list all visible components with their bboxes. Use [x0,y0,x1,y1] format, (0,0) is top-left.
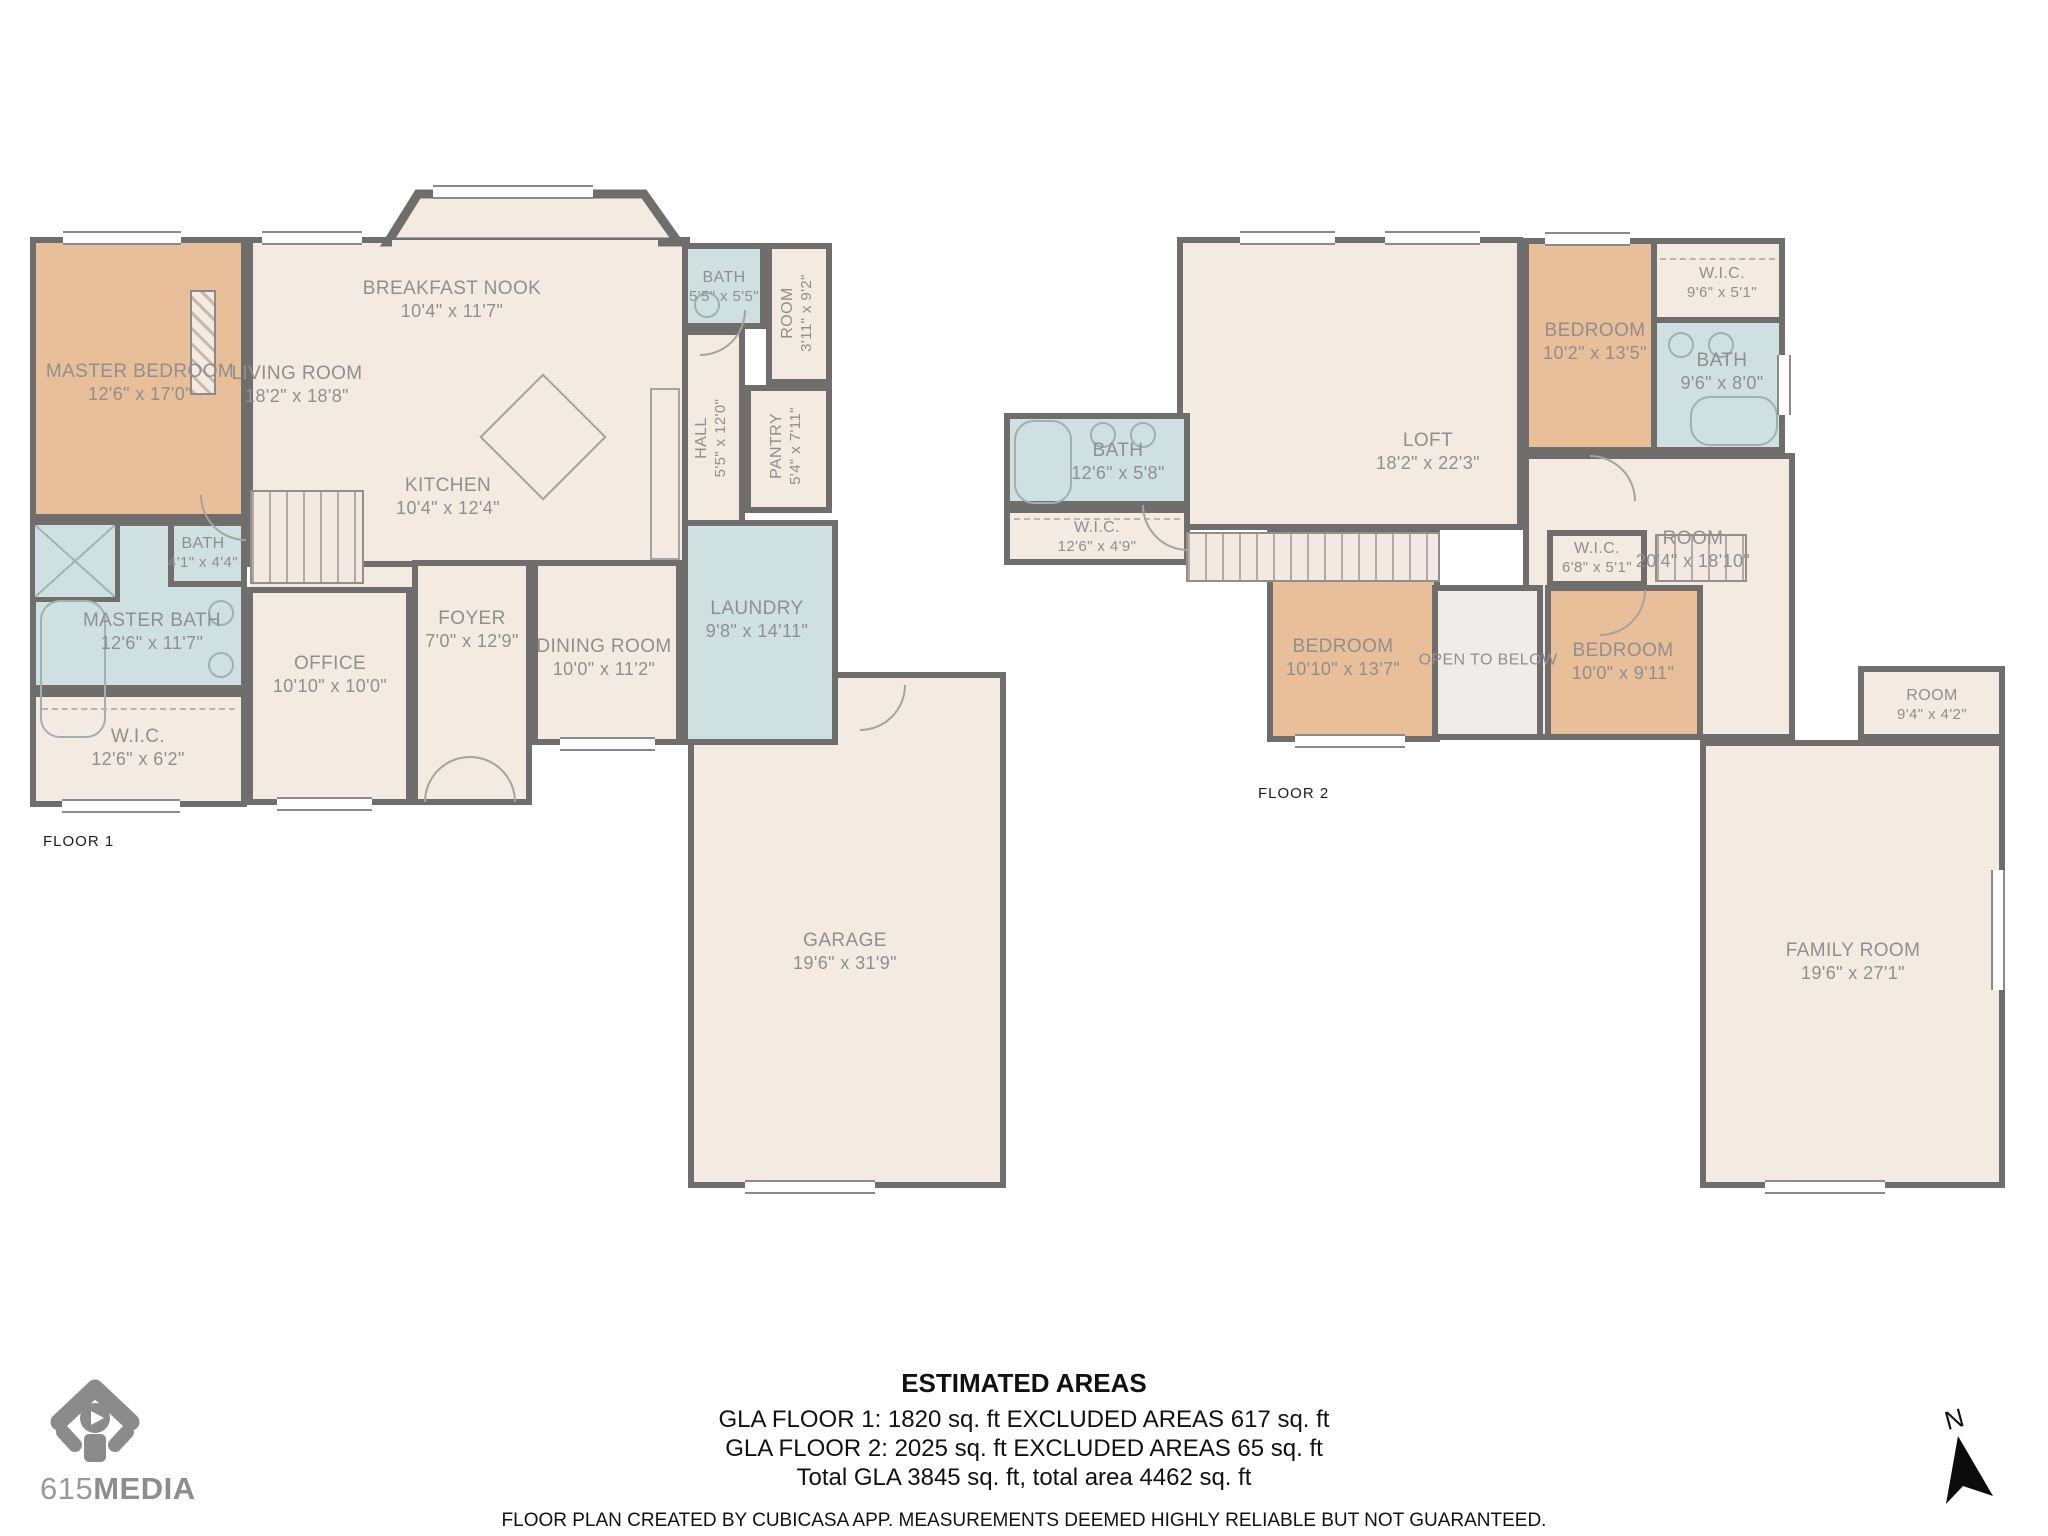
window [1385,231,1480,245]
label-office: OFFICE 10'10" x 10'0" [273,652,387,698]
closet-rod-line [1660,258,1775,260]
label-bath-upper: BATH 5'5" x 5'5" [689,268,759,306]
brand-logo: 615MEDIA [40,1372,196,1507]
label-big-room: ROOM 20'4" x 18'10" [1636,527,1750,573]
label-bedroom-mid: BEDROOM 10'0" x 9'11" [1572,639,1675,685]
window [1765,1180,1885,1194]
brand-word: MEDIA [93,1471,195,1506]
label-master-bedroom: MASTER BEDROOM 12'6" x 17'0" [46,360,234,406]
label-open-to-below: OPEN TO BELOW [1419,651,1558,670]
bathtub-icon [1014,420,1072,504]
total-gla-line: Total GLA 3845 sq. ft, total area 4462 s… [0,1463,2048,1492]
label-bath-small: BATH 4'1" x 4'4" [168,534,238,572]
label-wic-floor2-top: W.I.C. 9'6" x 5'1" [1687,264,1757,302]
window [1295,734,1405,748]
label-hall: HALL 5'5" x 12'0" [692,399,730,478]
window [277,797,372,811]
label-pantry: PANTRY 5'4" x 7'11" [767,407,805,485]
label-wic-floor2-small: W.I.C. 6'8" x 5'1" [1562,539,1632,577]
brand-house-icon [40,1372,150,1464]
bathtub-icon [1690,396,1778,446]
gla-floor2-line: GLA FLOOR 2: 2025 sq. ft EXCLUDED AREAS … [0,1434,2048,1463]
label-laundry: LAUNDRY 9'8" x 14'11" [706,597,809,643]
floor1-tag: FLOOR 1 [43,833,114,850]
label-family-room: FAMILY ROOM 19'6" x 27'1" [1786,939,1921,985]
estimated-areas-block: ESTIMATED AREAS GLA FLOOR 1: 1820 sq. ft… [0,1368,2048,1532]
label-garage: GARAGE 19'6" x 31'9" [793,929,897,975]
window [63,231,181,245]
room-loft [1177,237,1523,530]
floor2-tag: FLOOR 2 [1258,785,1329,802]
window [560,737,655,751]
label-wic-floor2-left: W.I.C. 12'6" x 4'9" [1058,518,1137,556]
label-kitchen: KITCHEN 10'4" x 12'4" [396,474,500,520]
window [1240,231,1335,245]
sink-icon [208,652,234,678]
disclaimer-text: FLOOR PLAN CREATED BY CUBICASA APP. MEAS… [0,1510,2048,1532]
label-living-room: LIVING ROOM 18'2" x 18'8" [231,362,362,408]
window [745,1180,875,1194]
label-foyer: FOYER 7'0" x 12'9" [425,607,519,653]
stairs-floor2-icon [1186,532,1440,582]
compass: N [1925,1402,2005,1517]
window [1777,355,1791,415]
brand-number: 615 [40,1471,93,1506]
label-side-room: ROOM 3'11" x 9'2" [778,274,816,352]
window [262,231,362,245]
label-wic-floor1: W.I.C. 12'6" x 6'2" [91,725,185,771]
label-bath-floor2-top: BATH 9'6" x 8'0" [1680,349,1763,395]
shower-stall [30,520,120,602]
bay-opening-patch [392,240,658,252]
window [1991,870,2005,990]
label-small-room: ROOM 9'4" x 4'2" [1897,686,1967,724]
label-bath-floor2-left: BATH 12'6" x 5'8" [1071,439,1165,485]
label-master-bath: MASTER BATH 12'6" x 11'7" [83,609,221,655]
stairs-floor1-icon [250,490,364,584]
label-breakfast-nook: BREAKFAST NOOK 10'4" x 11'7" [363,277,541,323]
label-loft: LOFT 18'2" x 22'3" [1376,429,1480,475]
window [433,185,593,199]
estimated-areas-heading: ESTIMATED AREAS [0,1368,2048,1399]
north-arrow-icon [1925,1402,2005,1517]
label-bedroom-low: BEDROOM 10'10" x 13'7" [1286,635,1400,681]
label-bedroom-top: BEDROOM 10'2" x 13'5" [1543,319,1647,365]
kitchen-counter-icon [650,388,680,560]
window [62,799,180,813]
window [1545,232,1630,246]
closet-rod-line [42,708,235,710]
brand-text: 615MEDIA [40,1471,196,1507]
floor-plan-page: MASTER BEDROOM 12'6" x 17'0" LIVING ROOM… [0,0,2048,1536]
gla-floor1-line: GLA FLOOR 1: 1820 sq. ft EXCLUDED AREAS … [0,1405,2048,1434]
label-dining-room: DINING ROOM 10'0" x 11'2" [536,635,671,681]
